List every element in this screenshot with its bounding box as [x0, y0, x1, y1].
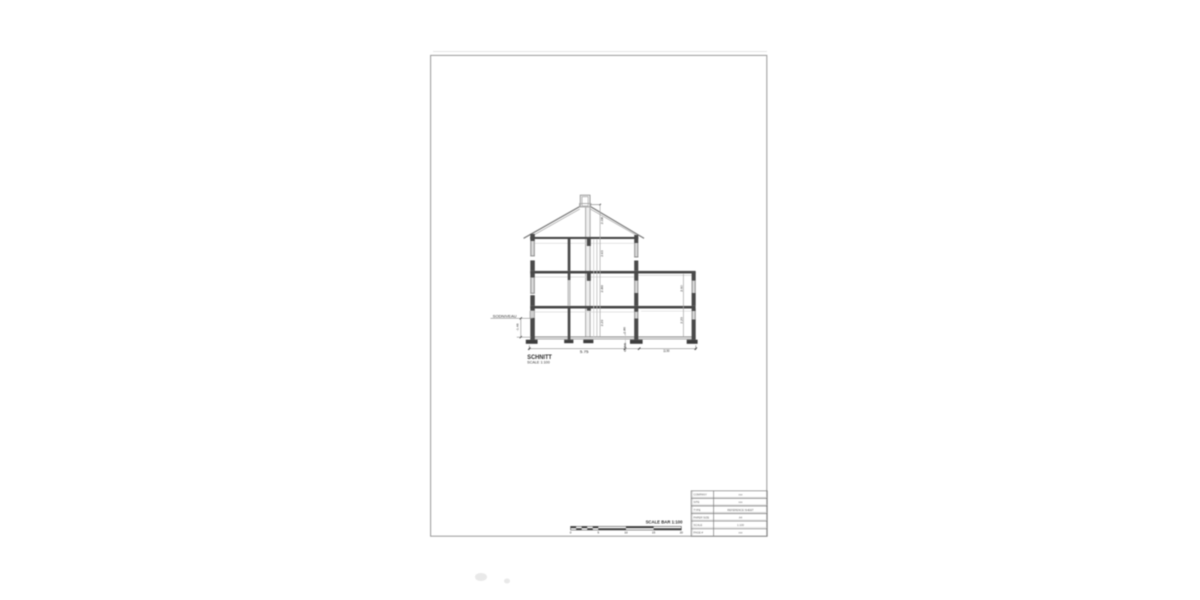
svg-text:SCALE 1:100: SCALE 1:100 — [527, 361, 550, 365]
svg-text:-0.86: -0.86 — [623, 326, 627, 335]
svg-text:5.75: 5.75 — [580, 350, 589, 354]
svg-text:xxx: xxx — [738, 494, 743, 497]
svg-text:2.08: 2.08 — [600, 217, 604, 225]
svg-text:2.63: 2.63 — [600, 250, 604, 257]
svg-text:2.60: 2.60 — [680, 285, 684, 292]
svg-text:20: 20 — [680, 531, 684, 535]
svg-text:TYPE: TYPE — [694, 508, 701, 512]
svg-text:PAPER SIZE: PAPER SIZE — [694, 515, 710, 519]
svg-text:A4: A4 — [739, 515, 743, 519]
svg-text:SCALE: SCALE — [694, 523, 703, 527]
svg-text:1:100: 1:100 — [737, 523, 744, 527]
svg-text:SCALE BAR 1:100: SCALE BAR 1:100 — [646, 519, 683, 524]
svg-text:SITE: SITE — [694, 500, 700, 504]
svg-text:COMPANY: COMPANY — [694, 493, 708, 497]
svg-text:REFERENCE SHEET: REFERENCE SHEET — [727, 508, 754, 512]
svg-text:2.20: 2.20 — [680, 317, 684, 324]
svg-text:11.90: 11.90 — [663, 349, 669, 353]
svg-text:10: 10 — [624, 531, 628, 535]
svg-text:xxx: xxx — [738, 501, 743, 504]
svg-text:15: 15 — [652, 531, 656, 535]
svg-text:0.86: 0.86 — [623, 342, 627, 352]
svg-text:PAGE #: PAGE # — [694, 531, 704, 535]
svg-text:2.80: 2.80 — [600, 285, 604, 293]
svg-text:2.20: 2.20 — [600, 320, 604, 327]
svg-text:xxx: xxx — [738, 532, 743, 535]
svg-text:-1.48: -1.48 — [516, 323, 520, 331]
